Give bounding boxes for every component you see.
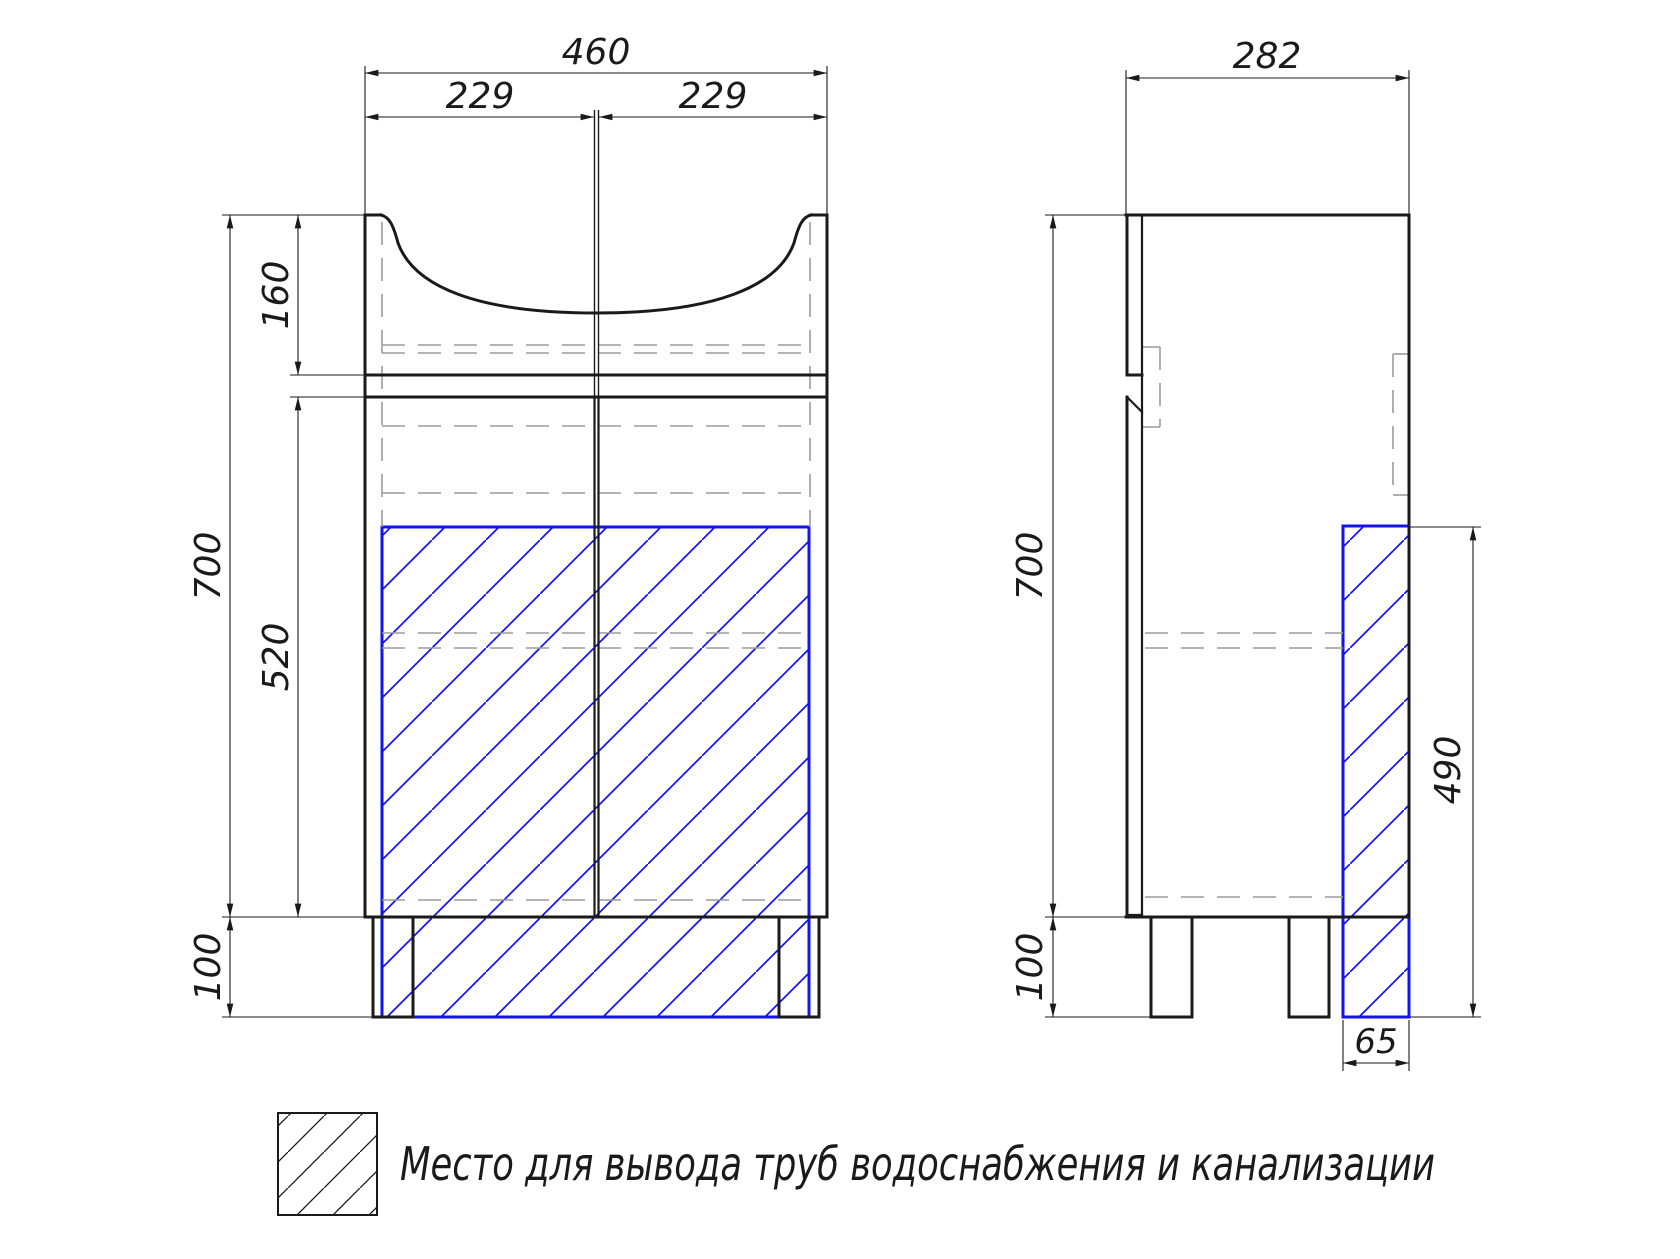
legend-text: Место для вывода труб водоснабжения и ка… (400, 1137, 1435, 1191)
dim-front-sink-height: 160 (256, 261, 297, 330)
legend: Место для вывода труб водоснабжения и ка… (278, 1113, 1435, 1215)
dim-side-depth: 282 (1233, 36, 1302, 77)
dim-front-body-height: 520 (256, 623, 297, 692)
side-view: 282 700 100 490 65 (1010, 36, 1481, 1071)
legend-hatch-symbol (278, 1113, 377, 1215)
dim-side-pipe-zone-height: 490 (1428, 736, 1469, 805)
technical-drawing-page: 460 229 229 160 520 700 100 (0, 0, 1680, 1259)
dim-side-total-height: 700 (1010, 532, 1051, 601)
dim-front-left-half: 229 (446, 76, 515, 117)
dim-front-right-half: 229 (679, 76, 748, 117)
side-legs (1151, 917, 1329, 1017)
dim-front-total-width: 460 (562, 32, 631, 73)
dim-front-total-height: 700 (188, 532, 229, 601)
pipe-zone-side (1343, 526, 1409, 1017)
front-view: 460 229 229 160 520 700 100 (188, 32, 827, 1017)
side-door-top-bevel (1127, 397, 1142, 412)
sink-bowl-curve (381, 215, 811, 313)
dim-side-pipe-zone-width: 65 (1354, 1022, 1397, 1062)
vanity-drawing-svg: 460 229 229 160 520 700 100 (0, 0, 1680, 1259)
dim-front-leg-height: 100 (188, 933, 229, 1002)
dim-side-leg-height: 100 (1010, 933, 1051, 1002)
